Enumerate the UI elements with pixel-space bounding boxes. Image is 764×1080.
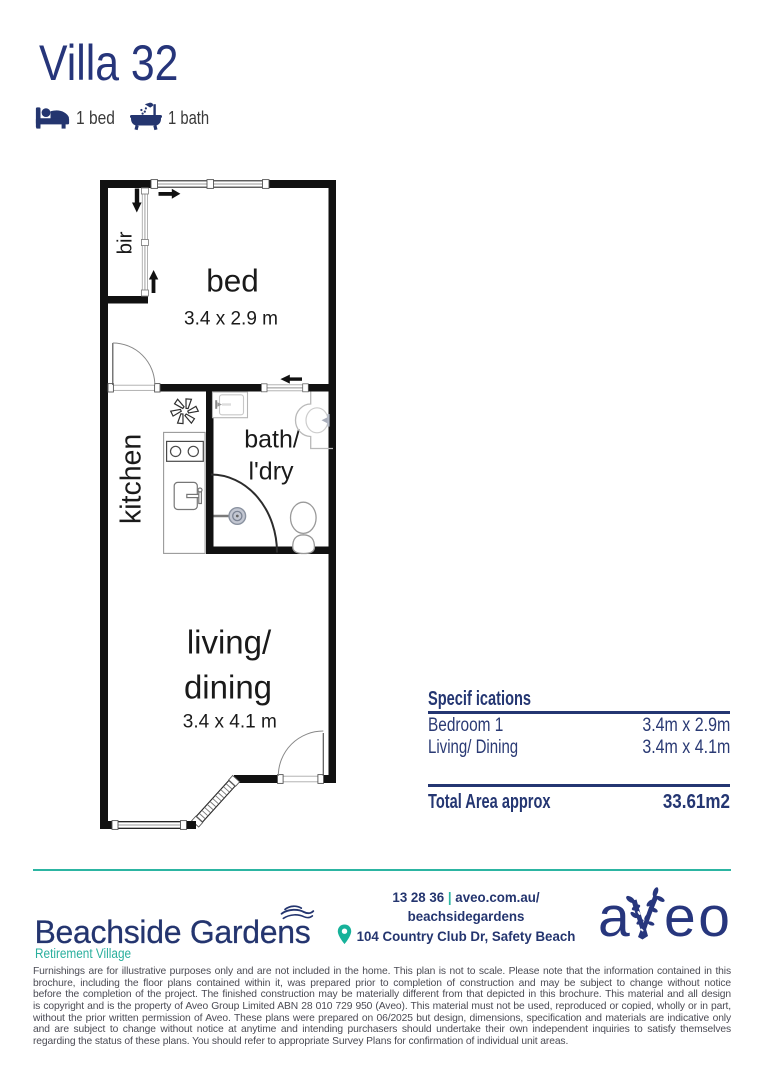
svg-text:l'dry: l'dry [248, 458, 294, 486]
svg-text:bed: bed [206, 263, 259, 299]
svg-text:3.4 x 4.1 m: 3.4 x 4.1 m [183, 712, 277, 733]
svg-text:dining: dining [184, 668, 272, 705]
svg-text:kitchen: kitchen [116, 434, 148, 524]
svg-text:a: a [598, 885, 630, 947]
svg-text:bir: bir [114, 231, 137, 254]
svg-text:3.4 x 2.9 m: 3.4 x 2.9 m [184, 309, 278, 330]
svg-text:bath/: bath/ [244, 425, 300, 453]
svg-text:living/: living/ [187, 623, 272, 660]
svg-text:eo: eo [664, 885, 732, 947]
